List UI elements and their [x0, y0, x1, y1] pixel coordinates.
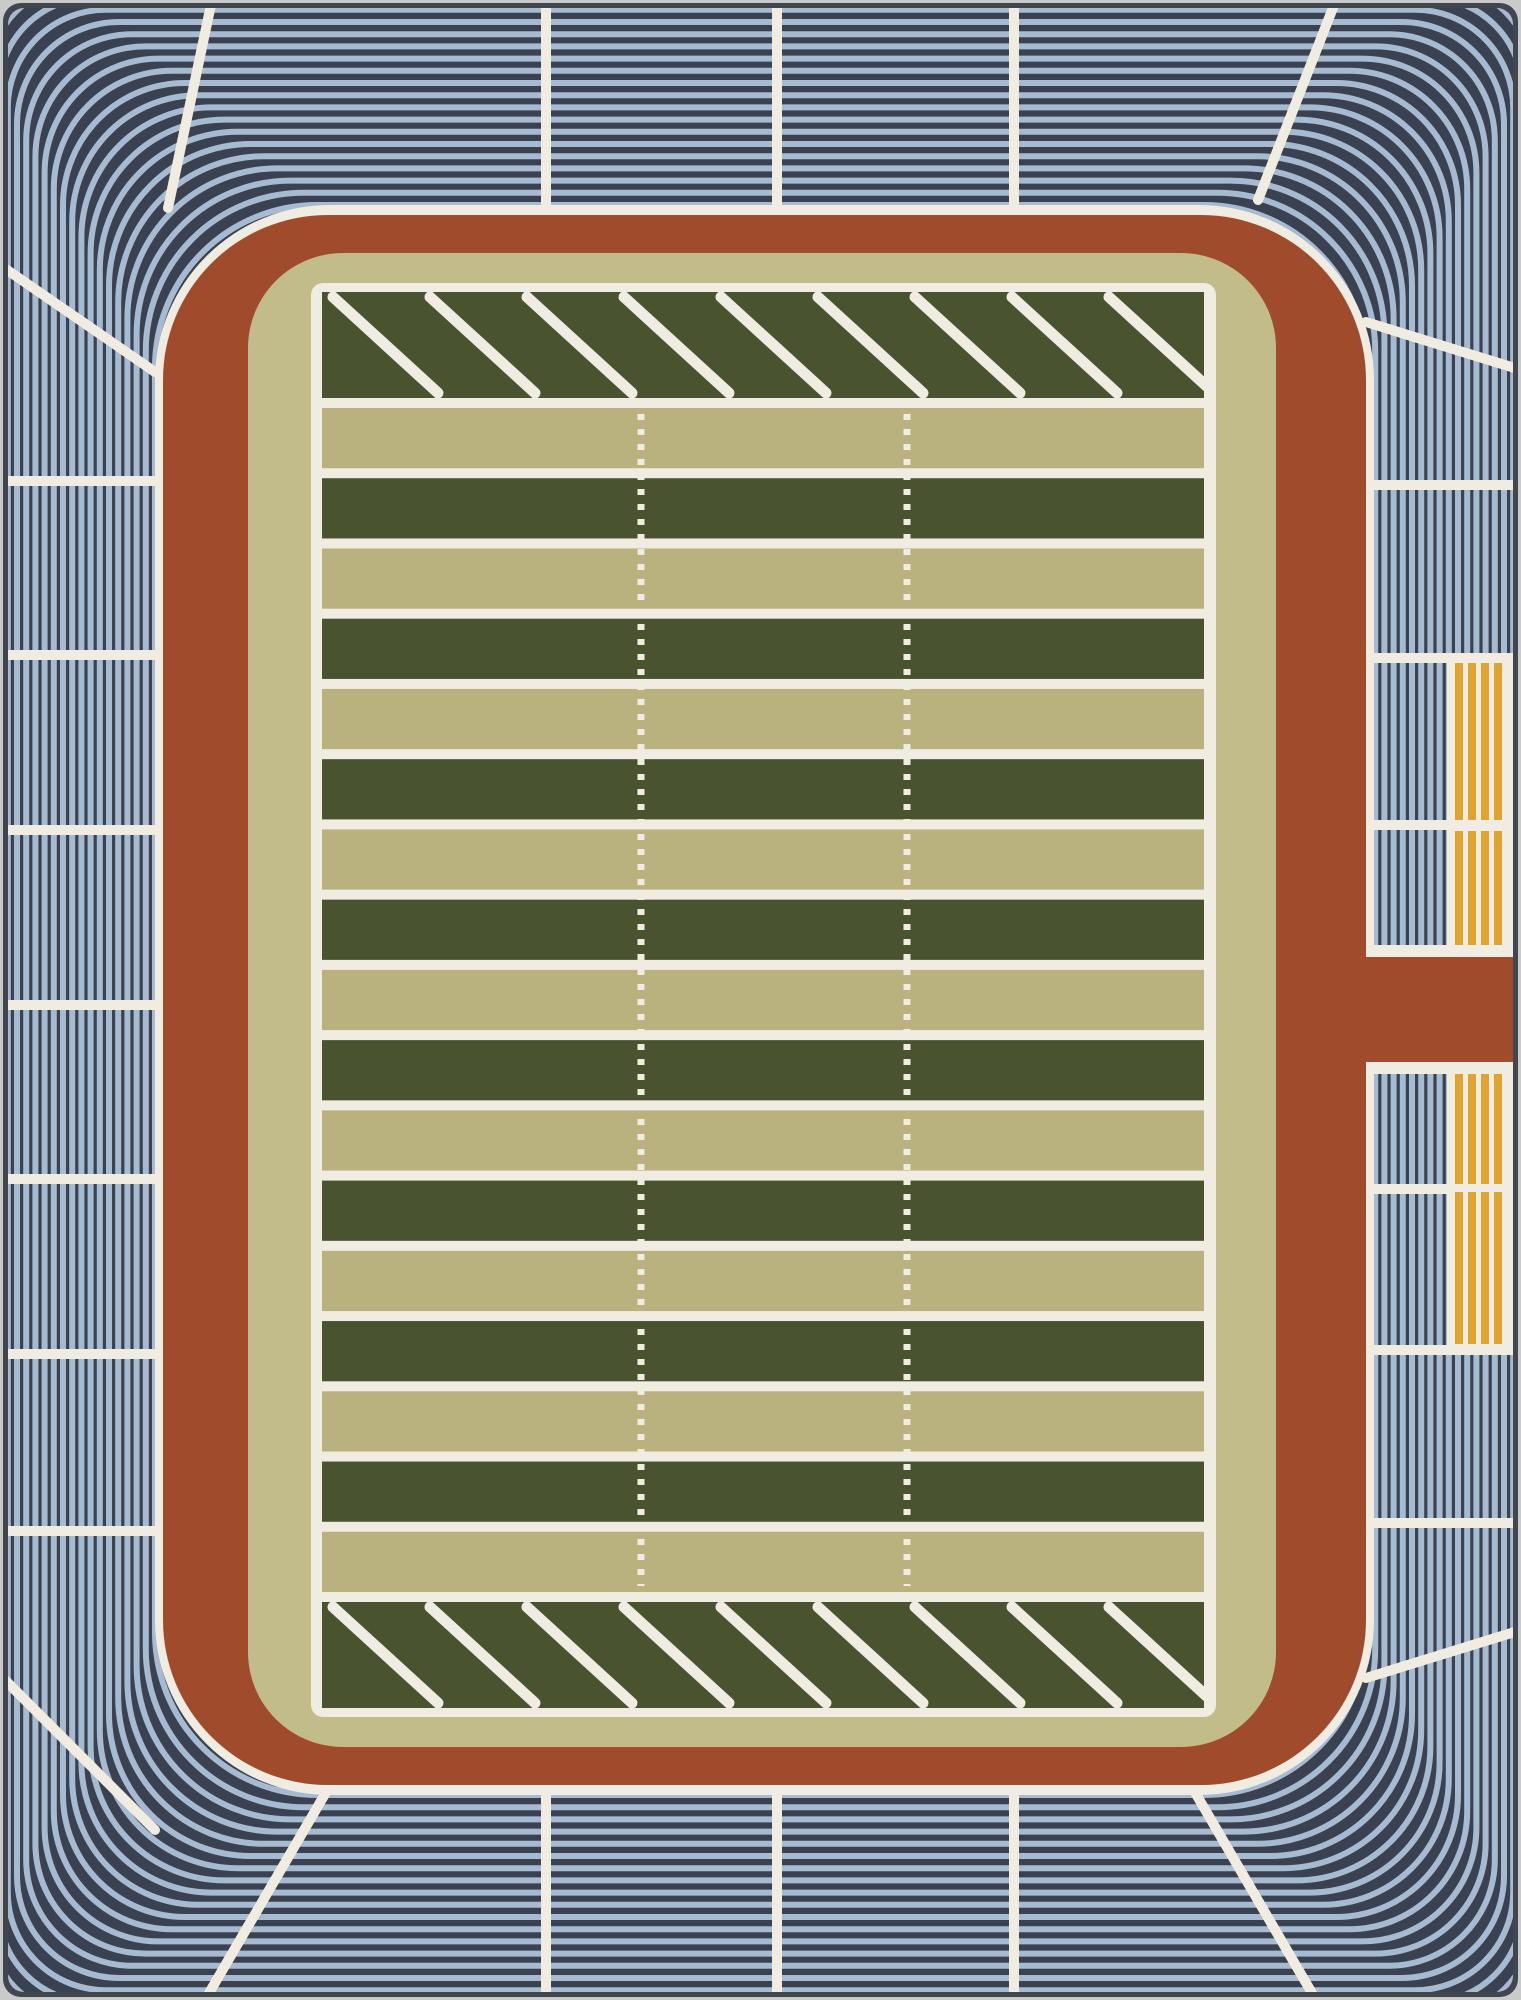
yard-stripe — [322, 548, 1204, 608]
yard-stripe — [322, 970, 1204, 1030]
yard-stripe — [322, 1532, 1204, 1592]
yard-stripe — [322, 829, 1204, 889]
yard-stripe — [322, 689, 1204, 749]
vip-gold-stripe — [1455, 831, 1463, 947]
vip-gold-stripe — [1455, 1068, 1463, 1184]
yard-stripe — [322, 408, 1204, 468]
yard-stripe — [322, 619, 1204, 679]
stadium-rug-photo — [0, 0, 1521, 2000]
vip-gold-stripe — [1468, 1192, 1476, 1344]
yard-stripe — [322, 1321, 1204, 1381]
football-field — [322, 292, 1214, 1708]
yard-stripe — [322, 1040, 1204, 1100]
vip-gold-stripe — [1494, 1192, 1502, 1344]
yard-stripe — [322, 1391, 1204, 1451]
vip-gold-stripe — [1494, 1068, 1502, 1184]
vip-gold-stripe — [1481, 1192, 1489, 1344]
yard-stripe — [322, 1181, 1204, 1241]
yard-stripe — [322, 1110, 1204, 1170]
vip-gold-stripe — [1494, 831, 1502, 947]
yard-stripe — [322, 1462, 1204, 1522]
vip-gold-stripe — [1494, 663, 1502, 820]
vip-gold-stripe — [1468, 1068, 1476, 1184]
vip-gold-stripe — [1481, 831, 1489, 947]
vip-gold-stripe — [1455, 1192, 1463, 1344]
yard-stripe — [322, 478, 1204, 538]
vip-gold-stripe — [1468, 831, 1476, 947]
yard-stripe — [322, 1251, 1204, 1311]
vip-gold-stripe — [1468, 663, 1476, 820]
track-tunnel — [1366, 945, 1521, 1074]
rug-interior — [0, 0, 1521, 2000]
vip-gold-stripe — [1481, 663, 1489, 820]
vip-gold-stripe — [1481, 1068, 1489, 1184]
yard-stripe — [322, 759, 1204, 819]
yard-stripe — [322, 900, 1204, 960]
vip-gold-stripe — [1455, 663, 1463, 820]
tunnel-floor — [1366, 957, 1521, 1062]
yard-stripes — [322, 408, 1204, 1592]
stadium-rug — [0, 0, 1521, 2000]
